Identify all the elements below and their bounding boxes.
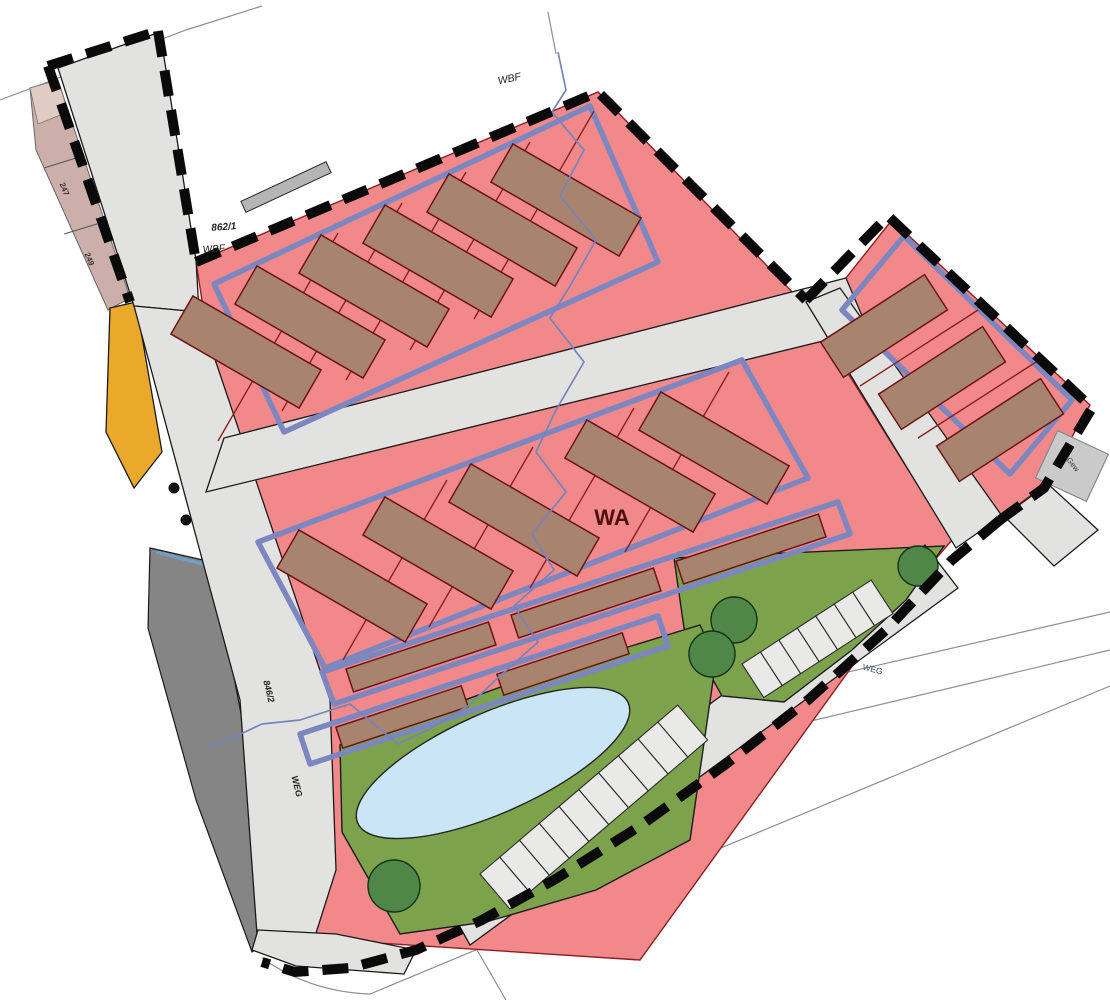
zoning-site-plan-map: WA WBF 862/1 WBF 846/2 WEG WEG 247 249 G… [0, 0, 1110, 1000]
tree [689, 631, 735, 677]
zone-label-wbf-left: WBF [202, 243, 226, 256]
survey-dot [169, 483, 180, 494]
tree [368, 860, 420, 912]
zone-label-wa: WA [594, 505, 630, 530]
parcel-label-862-1: 862/1 [211, 221, 237, 234]
site-plan-page: WA WBF 862/1 WBF 846/2 WEG WEG 247 249 G… [0, 0, 1110, 1000]
survey-dot [181, 515, 192, 526]
